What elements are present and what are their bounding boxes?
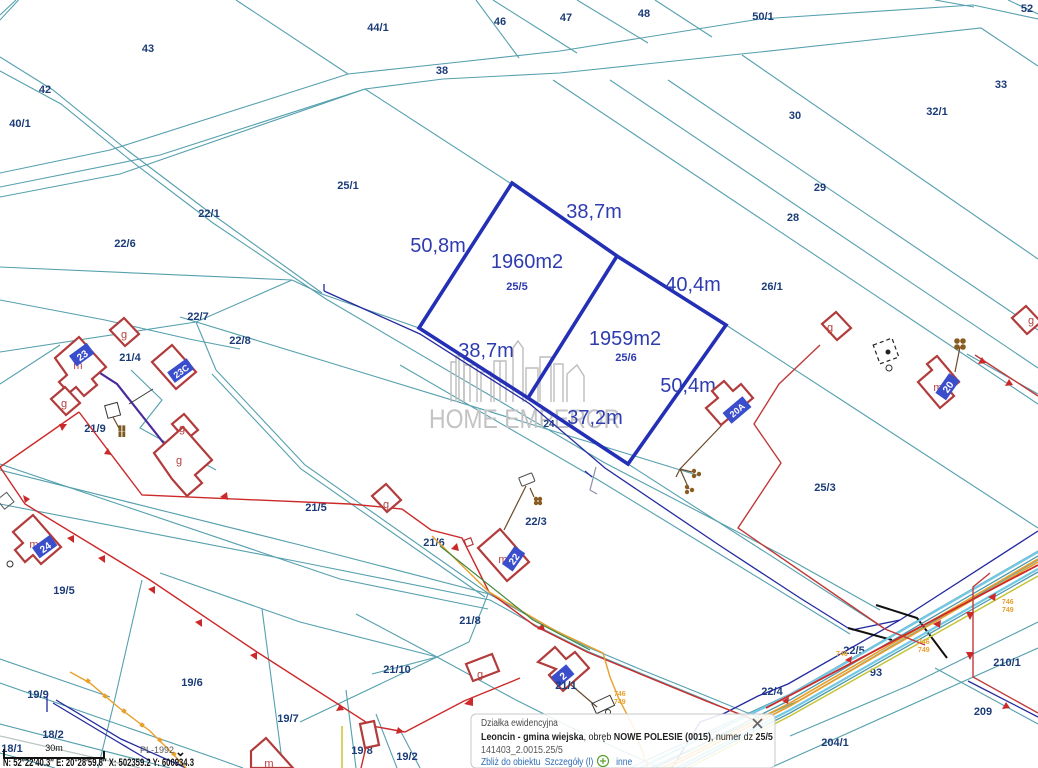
svg-text:m: m	[264, 758, 273, 768]
svg-text:749: 749	[918, 647, 930, 654]
svg-text:g: g	[827, 322, 833, 334]
svg-text:19/9: 19/9	[27, 689, 48, 701]
svg-text:52: 52	[1021, 3, 1033, 15]
svg-text:204/1: 204/1	[821, 737, 849, 749]
svg-text:30m: 30m	[45, 743, 63, 753]
svg-text:1960m2: 1960m2	[491, 251, 563, 273]
svg-text:43: 43	[142, 43, 154, 55]
svg-text:50/1: 50/1	[752, 11, 773, 23]
svg-text:44/1: 44/1	[367, 22, 388, 34]
svg-text:25/3: 25/3	[814, 482, 835, 494]
svg-text:Zbliż do obiektu: Zbliż do obiektu	[481, 756, 540, 767]
svg-text:40,4m: 40,4m	[665, 274, 721, 296]
svg-text:g: g	[179, 423, 185, 435]
svg-text:25/1: 25/1	[337, 180, 358, 192]
svg-text:50,8m: 50,8m	[410, 235, 466, 257]
svg-text:93: 93	[870, 667, 882, 679]
svg-text:19/6: 19/6	[181, 677, 202, 689]
svg-text:32/1: 32/1	[926, 106, 947, 118]
svg-text:21/10: 21/10	[383, 664, 411, 676]
svg-text:38: 38	[436, 65, 448, 77]
svg-text:22/8: 22/8	[229, 335, 250, 347]
svg-text:746: 746	[918, 639, 930, 646]
svg-text:18/2: 18/2	[42, 729, 63, 741]
svg-text:141403_2.0015.25/5: 141403_2.0015.25/5	[481, 744, 563, 756]
svg-text:Działka ewidencyjna: Działka ewidencyjna	[481, 717, 559, 728]
svg-text:g: g	[383, 499, 389, 511]
svg-text:22/1: 22/1	[198, 208, 219, 220]
svg-text:inne: inne	[616, 756, 632, 767]
svg-text:22/3: 22/3	[525, 516, 546, 528]
svg-text:25/6: 25/6	[615, 352, 636, 364]
svg-text:21/8: 21/8	[459, 615, 480, 627]
svg-text:33: 33	[995, 79, 1007, 91]
svg-text:746: 746	[836, 651, 848, 658]
svg-text:209: 209	[974, 706, 992, 718]
svg-text:g: g	[477, 669, 483, 681]
svg-text:22/7: 22/7	[187, 311, 208, 323]
svg-text:38,7m: 38,7m	[458, 340, 514, 362]
svg-text:47: 47	[560, 12, 572, 24]
svg-text:42: 42	[39, 84, 51, 96]
svg-text:38,7m: 38,7m	[566, 201, 622, 223]
svg-text:29: 29	[814, 182, 826, 194]
svg-text:21/5: 21/5	[305, 502, 326, 514]
svg-text:N: 52°22′40.3″ E: 20°28′59.8″: N: 52°22′40.3″ E: 20°28′59.8″ X: 502359.…	[3, 757, 194, 768]
svg-text:22/6: 22/6	[114, 238, 135, 250]
svg-text:749: 749	[1002, 607, 1014, 614]
svg-text:40/1: 40/1	[9, 118, 30, 130]
svg-text:50,4m: 50,4m	[660, 375, 716, 397]
svg-text:749: 749	[614, 699, 626, 706]
svg-text:46: 46	[494, 16, 506, 28]
svg-text:g: g	[1028, 315, 1034, 327]
svg-text:g: g	[61, 398, 67, 410]
svg-text:g: g	[121, 329, 127, 341]
svg-text:Szczegóły (l): Szczegóły (l)	[545, 756, 594, 767]
svg-text:746: 746	[1002, 599, 1014, 606]
svg-text:▮▮: ▮▮	[118, 431, 126, 438]
svg-text:g: g	[176, 455, 182, 467]
svg-text:746: 746	[614, 691, 626, 698]
svg-text:1959m2: 1959m2	[589, 328, 661, 350]
svg-text:28: 28	[787, 212, 799, 224]
svg-text:21/1: 21/1	[555, 680, 576, 692]
svg-text:25/5: 25/5	[506, 281, 527, 293]
svg-text:21/4: 21/4	[119, 352, 141, 364]
svg-text:210/1: 210/1	[993, 657, 1021, 669]
svg-text:Leoncin - gmina wiejska, obręb: Leoncin - gmina wiejska, obręb NOWE POLE…	[481, 731, 773, 743]
svg-text:37,2m: 37,2m	[567, 407, 623, 429]
svg-text:19/2: 19/2	[396, 751, 417, 763]
svg-text:48: 48	[638, 8, 650, 20]
svg-text:30: 30	[789, 110, 801, 122]
svg-text:19/5: 19/5	[53, 585, 74, 597]
svg-text:PL-1992: PL-1992	[140, 745, 174, 755]
svg-text:26/1: 26/1	[761, 281, 782, 293]
svg-text:19/7: 19/7	[277, 713, 298, 725]
